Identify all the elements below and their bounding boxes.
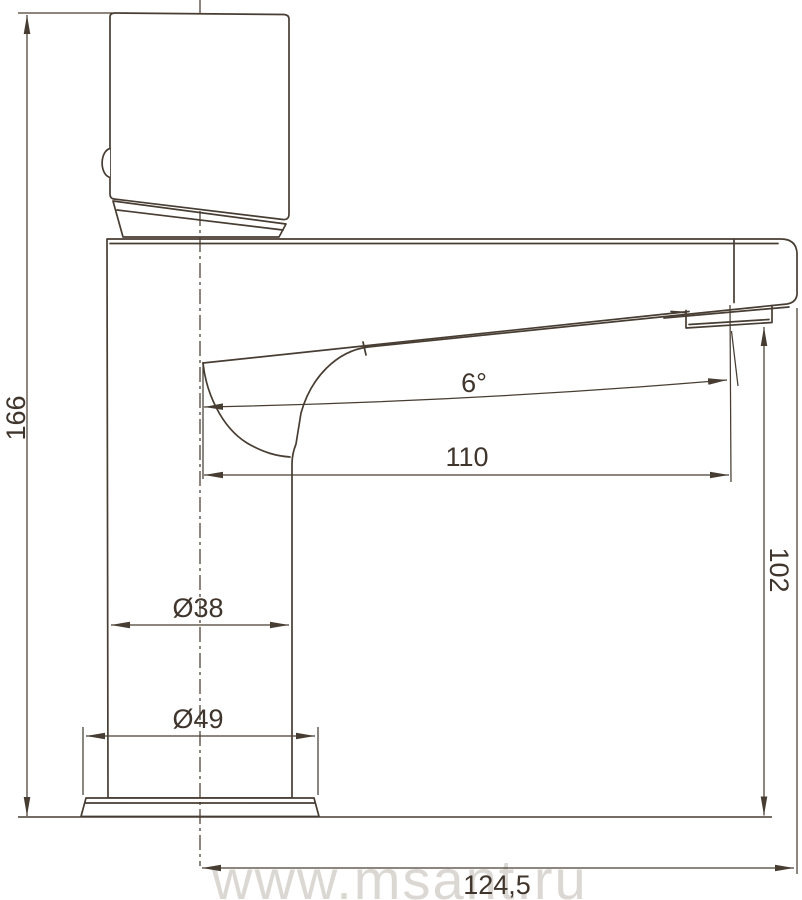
dim-label-total-depth: 124,5 [463,870,531,900]
handle-side-nub [102,149,110,178]
dim-label-body-diameter: Ø38 [172,593,223,623]
dim-label-total-height: 166 [1,395,31,440]
knurled-handle [110,13,289,220]
dim-label-spout-height: 102 [764,547,794,592]
faucet-technical-drawing: www.msant.ru [0,0,802,900]
dim-label-base-diameter: Ø49 [172,704,223,734]
watermark-text: www.msant.ru [211,848,588,900]
dim-label-spout-reach: 110 [445,442,488,472]
dim-label-spout-angle: 6° [461,368,487,398]
drawing-canvas: www.msant.ru [0,0,802,900]
faucet-outline [81,13,797,817]
